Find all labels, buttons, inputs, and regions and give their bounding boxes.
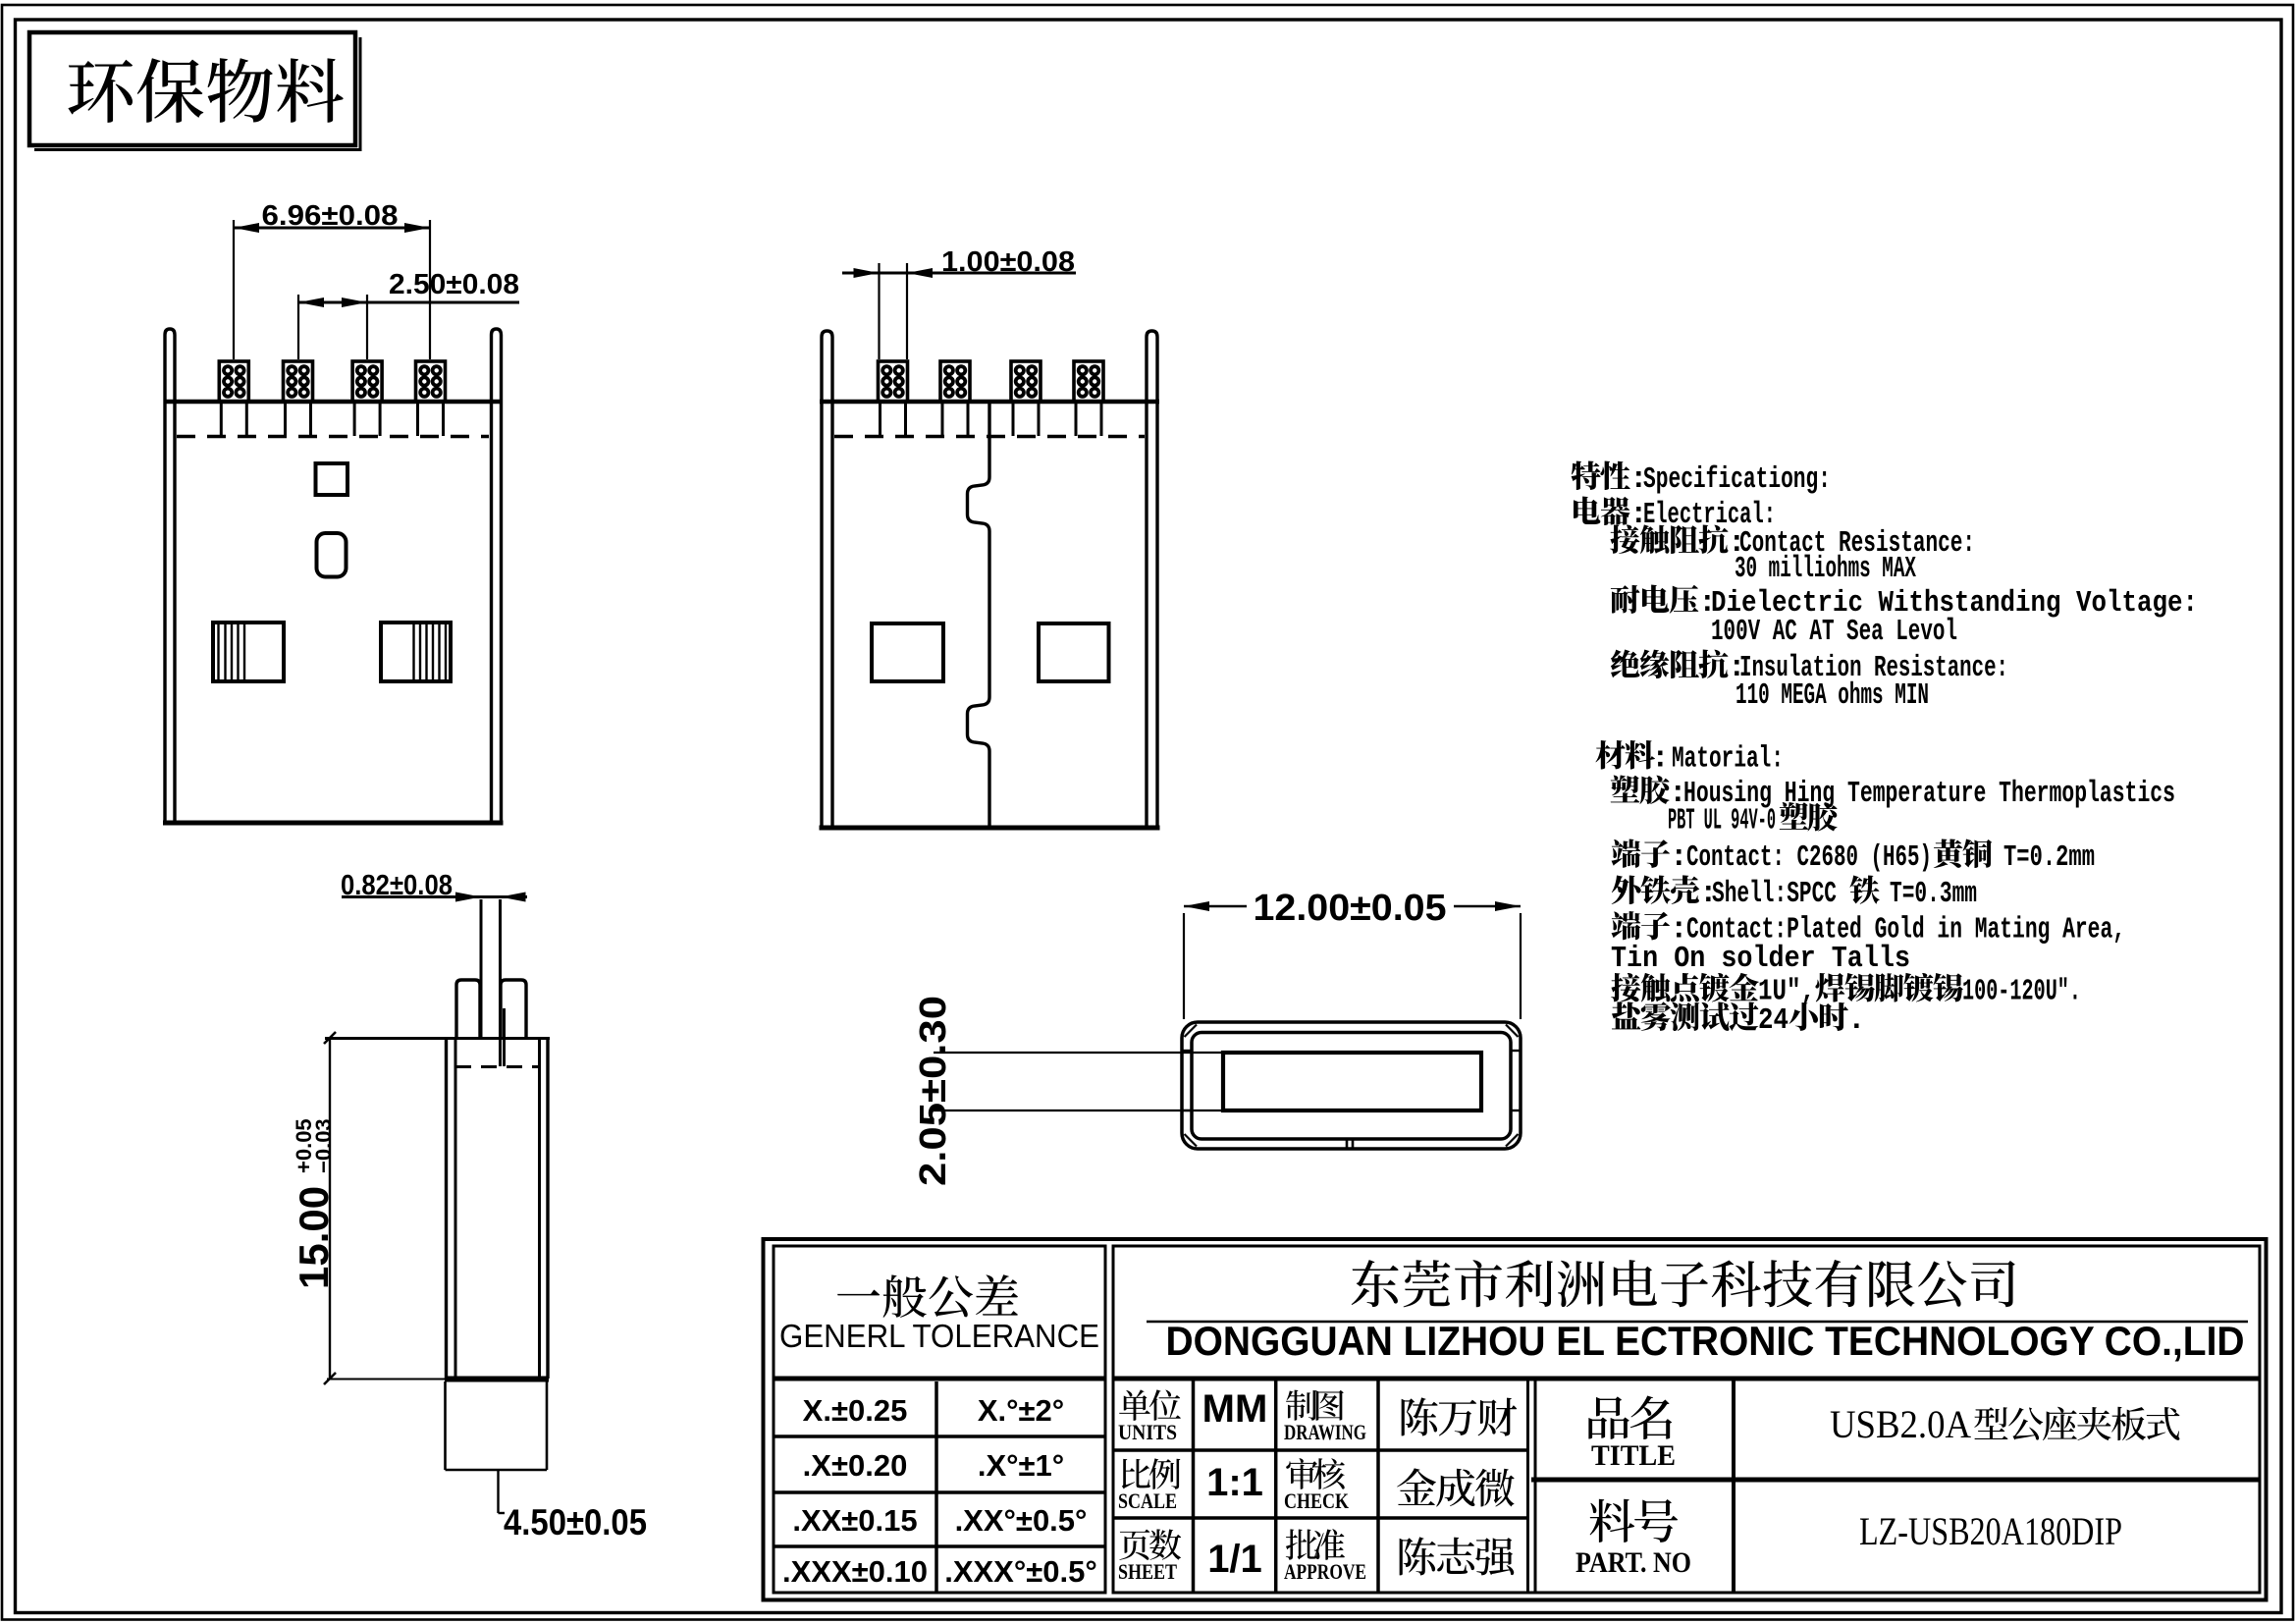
svg-text:SCALE: SCALE (1118, 1489, 1177, 1513)
svg-text:APPROVE: APPROVE (1284, 1559, 1366, 1584)
svg-text:.: . (1847, 1003, 1866, 1038)
svg-text:Shell:SPCC: Shell:SPCC (1712, 877, 1837, 911)
svg-text:110 MEGA ohms MIN: 110 MEGA ohms MIN (1735, 678, 1929, 713)
svg-text:T=0.2mm: T=0.2mm (2003, 840, 2095, 875)
svg-text::: : (1651, 742, 1670, 777)
svg-text:DRAWING: DRAWING (1284, 1420, 1366, 1444)
svg-text:LZ-USB20A180DIP: LZ-USB20A180DIP (1859, 1509, 2122, 1553)
svg-text:SHEET: SHEET (1118, 1559, 1177, 1584)
svg-text:12.00±0.05: 12.00±0.05 (1254, 888, 1447, 929)
svg-text:PBT UL 94V-0: PBT UL 94V-0 (1668, 804, 1776, 839)
svg-text:.XX±0.15: .XX±0.15 (792, 1503, 917, 1538)
svg-text::: : (1670, 840, 1688, 875)
svg-text:.X±0.20: .X±0.20 (803, 1448, 908, 1483)
svg-text:USB2.0A: USB2.0A (1830, 1402, 1971, 1446)
svg-text:UNITS: UNITS (1118, 1420, 1177, 1444)
svg-text:PART. NO: PART. NO (1575, 1546, 1691, 1579)
svg-text:15.00: 15.00 (291, 1186, 337, 1289)
svg-text:MM: MM (1202, 1387, 1268, 1431)
svg-text:.XXX°±0.5°: .XXX°±0.5° (944, 1554, 1097, 1589)
svg-text:CHECK: CHECK (1284, 1489, 1349, 1513)
svg-text:.XXX±0.10: .XXX±0.10 (782, 1554, 928, 1589)
svg-text:DONGGUAN LIZHOU EL ECTRONIC TE: DONGGUAN LIZHOU EL ECTRONIC TECHNOLOGY C… (1166, 1318, 2245, 1364)
svg-text:Specificationg:: Specificationg: (1643, 462, 1831, 497)
svg-text:.X°±1°: .X°±1° (978, 1448, 1064, 1483)
svg-text:Tin On solder Talls: Tin On solder Talls (1611, 942, 1910, 976)
svg-text:T=0.3mm: T=0.3mm (1890, 877, 1977, 911)
svg-text:TITLE: TITLE (1591, 1439, 1676, 1472)
svg-text:2.50±0.08: 2.50±0.08 (389, 269, 519, 300)
svg-text:−0.03: −0.03 (311, 1118, 336, 1173)
svg-text:Matorial:: Matorial: (1672, 742, 1784, 777)
svg-text:2.05±0.30: 2.05±0.30 (913, 996, 954, 1186)
svg-text:100V AC AT Sea Levol: 100V AC AT Sea Levol (1711, 615, 1957, 649)
svg-text:Contact: C2680 (H65): Contact: C2680 (H65) (1686, 840, 1932, 875)
svg-text:1:1: 1:1 (1206, 1461, 1263, 1504)
svg-text:X.±0.25: X.±0.25 (803, 1393, 908, 1428)
svg-text:.XX°±0.5°: .XX°±0.5° (955, 1503, 1088, 1538)
svg-text:100-120U″.: 100-120U″. (1962, 975, 2081, 1009)
svg-text:X.°±2°: X.°±2° (978, 1393, 1064, 1428)
svg-text:GENERL TOLERANCE: GENERL TOLERANCE (779, 1318, 1099, 1354)
svg-text:1/1: 1/1 (1207, 1538, 1262, 1581)
svg-text:4.50±0.05: 4.50±0.05 (504, 1502, 647, 1543)
svg-text:24: 24 (1758, 1003, 1789, 1038)
svg-text:30 milliohms MAX: 30 milliohms MAX (1735, 552, 1916, 586)
